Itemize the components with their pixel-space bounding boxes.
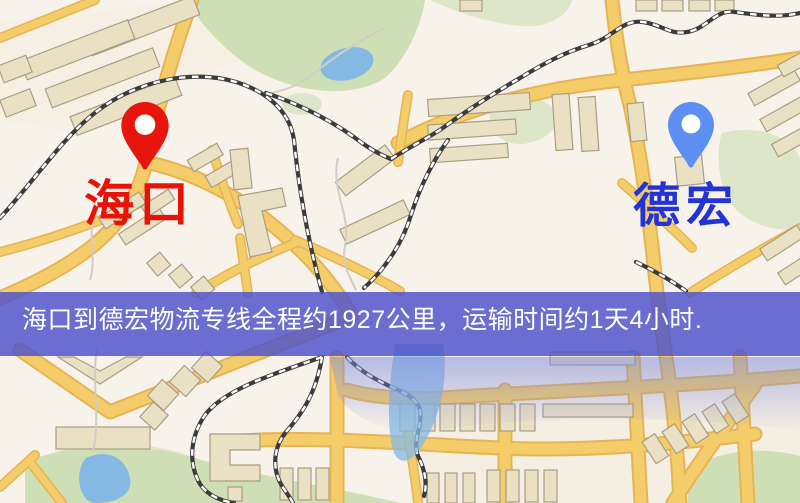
red-location-pin-icon [117, 101, 173, 171]
route-map-image [0, 0, 800, 503]
route-info-text: 海口到德宏物流专线全程约1927公里，运输时间约1天4小时. [0, 308, 724, 340]
route-map: 海口 德宏 海口到德宏物流专线全程约1927公里，运输时间约1天4小时. [0, 0, 800, 503]
route-info-banner: 海口到德宏物流专线全程约1927公里，运输时间约1天4小时. [0, 292, 800, 356]
blue-location-pin-icon [664, 101, 718, 169]
destination-city-label: 德宏 [633, 182, 739, 229]
origin-city-label: 海口 [84, 179, 194, 229]
